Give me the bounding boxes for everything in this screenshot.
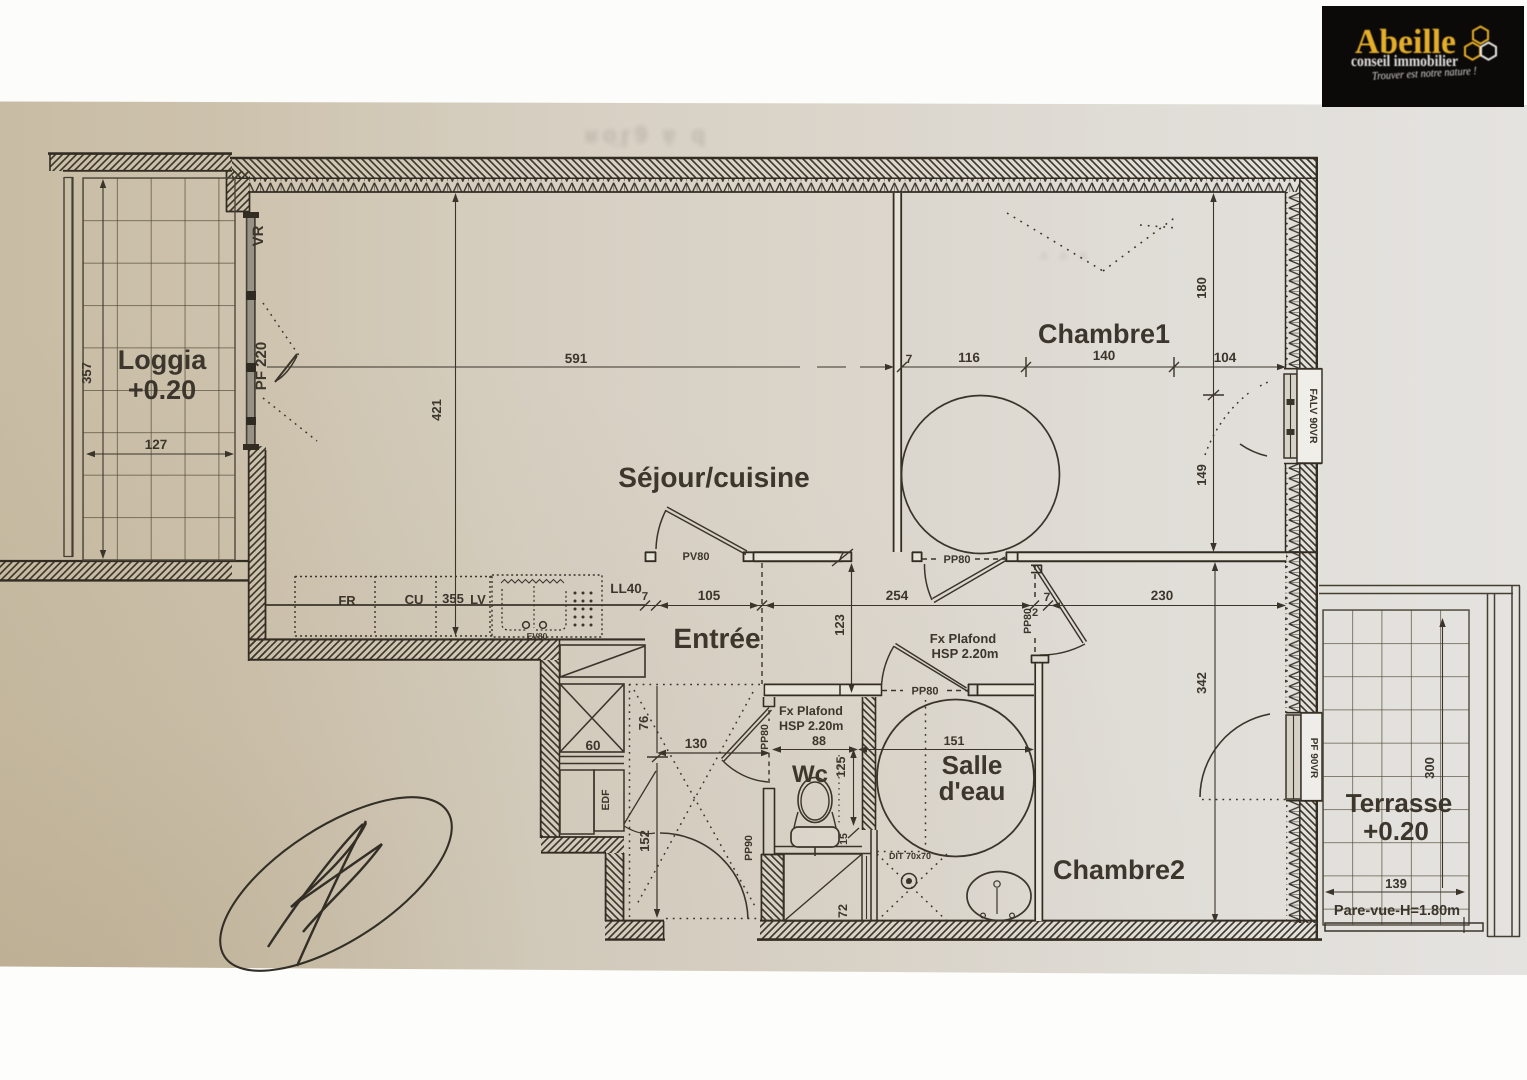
svg-text:Chambre2: Chambre2 [1053, 855, 1185, 885]
svg-text:591: 591 [565, 351, 588, 366]
svg-text:230: 230 [1151, 588, 1174, 603]
svg-text:+0.20: +0.20 [1363, 816, 1429, 846]
svg-text:72: 72 [836, 904, 850, 918]
svg-text:PF 220: PF 220 [253, 342, 270, 390]
svg-text:Loggia: Loggia [118, 345, 207, 375]
svg-text:123: 123 [832, 614, 847, 636]
svg-text:357: 357 [79, 362, 94, 384]
svg-text:Fx Plafond: Fx Plafond [779, 704, 843, 718]
svg-text:HSP 2.20m: HSP 2.20m [932, 646, 999, 661]
svg-text:180: 180 [1194, 277, 1209, 299]
svg-text:EDF: EDF [600, 789, 612, 811]
svg-text:76: 76 [636, 716, 651, 730]
svg-text:88: 88 [812, 734, 826, 748]
svg-text:PP80: PP80 [944, 554, 971, 566]
svg-text:125: 125 [834, 757, 848, 778]
svg-text:130: 130 [685, 736, 708, 751]
svg-text:Fx Plafond: Fx Plafond [930, 631, 997, 646]
svg-text:Séjour/cuisine: Séjour/cuisine [618, 462, 809, 493]
svg-text:FALV 90VR: FALV 90VR [1307, 388, 1319, 444]
svg-text:7: 7 [906, 352, 913, 366]
svg-text:Entrée: Entrée [673, 623, 760, 654]
svg-text:300: 300 [1422, 757, 1437, 779]
svg-text:PP80: PP80 [759, 724, 771, 750]
svg-text:LL40: LL40 [610, 581, 642, 596]
svg-text:Pare-vue-H=1.80m: Pare-vue-H=1.80m [1334, 903, 1460, 919]
svg-text:151: 151 [944, 734, 965, 748]
svg-text:PF 90VR: PF 90VR [1308, 738, 1319, 779]
svg-text:421: 421 [429, 399, 444, 421]
svg-text:149: 149 [1194, 464, 1209, 486]
svg-text:140: 140 [1093, 348, 1116, 363]
svg-text:ʁо̤ɼ9 ɐ̣ q: ʁо̤ɼ9 ɐ̣ q [585, 122, 710, 147]
svg-text:HSP 2.20m: HSP 2.20m [779, 719, 843, 733]
svg-text:7: 7 [642, 591, 648, 603]
svg-text:PV80: PV80 [683, 551, 710, 563]
svg-text:DIT 70x70: DIT 70x70 [889, 851, 931, 861]
svg-text:104: 104 [1214, 350, 1237, 365]
svg-text:d'eau: d'eau [939, 776, 1006, 806]
svg-text:60: 60 [585, 738, 600, 753]
svg-text:105: 105 [698, 588, 721, 603]
svg-text:PP90: PP90 [743, 835, 755, 861]
svg-text:139: 139 [1385, 876, 1407, 891]
svg-text:PP80: PP80 [912, 686, 939, 698]
svg-text:VR: VR [250, 225, 267, 246]
svg-text:+0.20: +0.20 [128, 375, 196, 405]
svg-text:7: 7 [838, 551, 844, 563]
svg-text:127: 127 [145, 437, 168, 452]
svg-text:PP80: PP80 [1022, 608, 1034, 634]
svg-text:342: 342 [1194, 672, 1209, 694]
svg-text:EV80: EV80 [527, 631, 548, 641]
svg-text:116: 116 [958, 350, 980, 365]
svg-text:355: 355 [442, 591, 464, 606]
svg-text:ʌ ʌ ʌ: ʌ ʌ ʌ [1040, 247, 1091, 264]
svg-text:254: 254 [886, 588, 909, 603]
svg-text:Terrasse: Terrasse [1346, 788, 1453, 818]
svg-text:Chambre1: Chambre1 [1038, 319, 1170, 349]
